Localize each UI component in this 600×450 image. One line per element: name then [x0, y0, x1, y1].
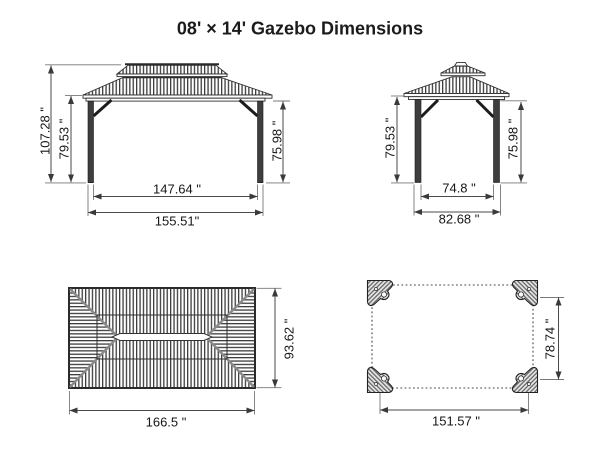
side-post-height-label: 79.53 " — [384, 118, 397, 159]
corner-plate-bottom-right — [512, 367, 537, 392]
diagram-canvas — [0, 0, 600, 450]
corner-plate-top-right — [512, 281, 537, 306]
corner-plate-bottom-left — [368, 367, 393, 392]
page-title: 08' × 14' Gazebo Dimensions — [177, 19, 423, 40]
base-plan-dimension-lines — [380, 298, 564, 415]
roof-plan-drawing — [69, 288, 255, 388]
corner-plate-top-left — [368, 281, 393, 306]
side-inner-width-label: 74.8 " — [442, 182, 476, 195]
side-clear-height-label: 75.98 " — [507, 119, 520, 160]
gazebo-dimensions-diagram: 08' × 14' Gazebo Dimensions 107.28 " 79.… — [0, 0, 600, 450]
roof-depth-label: 93.62 " — [283, 319, 296, 360]
front-total-height-label: 107.28 " — [39, 107, 52, 155]
front-clear-height-label: 75.98 " — [271, 121, 284, 162]
front-elevation-drawing — [83, 64, 272, 182]
base-plan-drawing — [368, 281, 538, 393]
side-outer-width-label: 82.68 " — [439, 213, 480, 226]
side-elevation-drawing — [404, 62, 509, 182]
front-outer-width-label: 155.51" — [155, 215, 199, 228]
front-inner-width-label: 147.64 " — [153, 183, 201, 196]
roof-width-label: 166.5 " — [146, 416, 187, 429]
base-depth-label: 78.74 " — [544, 319, 557, 360]
front-post-height-label: 79.53 " — [58, 119, 71, 160]
base-width-label: 151.57 " — [432, 415, 480, 428]
